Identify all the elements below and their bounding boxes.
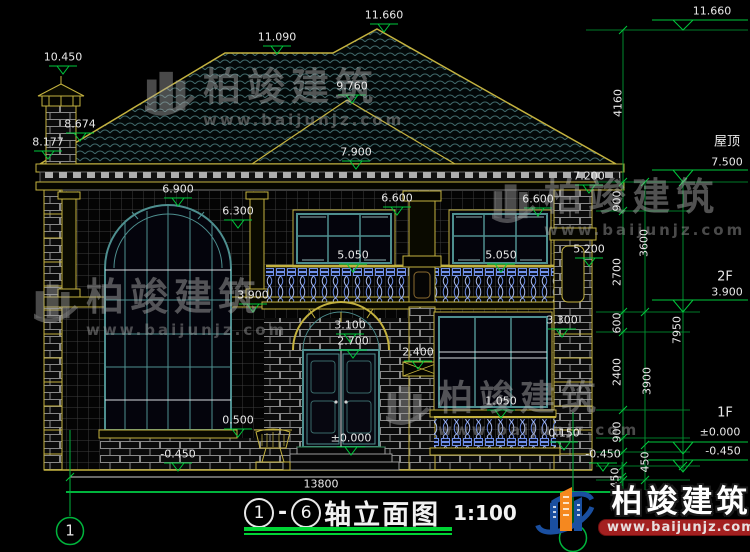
dimension-label: 11.660 bbox=[365, 10, 404, 21]
dimension-label: 3600 bbox=[639, 229, 650, 257]
dimension-label: 450 bbox=[640, 452, 651, 473]
dimension-label: 6.300 bbox=[222, 206, 254, 217]
axis-bubble-number: 1 bbox=[65, 524, 75, 539]
dimension-label: ±0.000 bbox=[700, 427, 741, 438]
dimension-label: 2700 bbox=[612, 258, 623, 286]
dimension-label: 5.050 bbox=[485, 250, 517, 261]
dimension-label: 3.900 bbox=[237, 290, 269, 301]
dimension-label: 10.450 bbox=[44, 52, 83, 63]
axis-circle-start: 1 bbox=[244, 498, 274, 528]
dimension-label: 5.200 bbox=[573, 244, 605, 255]
title-underline bbox=[244, 533, 452, 535]
title-scale: 1:100 bbox=[453, 501, 517, 525]
dimension-label: 7.200 bbox=[573, 171, 605, 182]
title-separator: - bbox=[278, 500, 287, 525]
dimension-label: 900 bbox=[612, 191, 623, 212]
dimension-label: -0.450 bbox=[705, 446, 740, 457]
entry-steps bbox=[283, 447, 399, 470]
dimension-label: 3.300 bbox=[546, 315, 578, 326]
dimension-label: 0.150 bbox=[548, 428, 580, 439]
dimension-label: 3900 bbox=[642, 367, 653, 395]
dimension-label: -0.450 bbox=[585, 449, 620, 460]
dimension-label: 13800 bbox=[304, 479, 339, 490]
dimension-label: 6.600 bbox=[522, 194, 554, 205]
brand-logo: 柏竣建筑 www.baijunjz.com bbox=[534, 477, 750, 545]
dimension-label: 7.900 bbox=[340, 147, 372, 158]
brand-logo-icon bbox=[534, 477, 596, 545]
dimension-label: 3.900 bbox=[711, 287, 743, 298]
dimension-label: 4160 bbox=[613, 89, 624, 117]
dimension-label: 1.050 bbox=[485, 396, 517, 407]
dimension-label: 1F bbox=[717, 407, 733, 420]
main-roof bbox=[40, 29, 616, 164]
dimension-label: 屋顶 bbox=[714, 136, 740, 149]
dimension-label: 3.100 bbox=[334, 320, 366, 331]
dimension-label: 900 bbox=[612, 422, 623, 443]
axis-circle-end: 6 bbox=[291, 498, 321, 528]
dimension-label: 600 bbox=[612, 313, 623, 334]
dimension-label: 5.050 bbox=[337, 250, 369, 261]
brand-logo-url: www.baijunjz.com bbox=[598, 519, 750, 536]
dimension-label: 11.660 bbox=[693, 6, 732, 17]
dimension-label: 8.674 bbox=[64, 119, 96, 130]
dimension-label: 0.500 bbox=[222, 415, 254, 426]
arched-window bbox=[99, 205, 237, 438]
balustrade-1f bbox=[430, 417, 560, 455]
dimension-label: 8.177 bbox=[32, 137, 64, 148]
dimension-label: 6.600 bbox=[381, 193, 413, 204]
title-underline bbox=[244, 527, 452, 531]
dimension-label: ±0.000 bbox=[331, 433, 372, 444]
dimension-label: 2F bbox=[717, 271, 733, 284]
dimension-label: 9.760 bbox=[336, 81, 368, 92]
dimension-label: -0.450 bbox=[160, 449, 195, 460]
cornice-band bbox=[36, 164, 624, 190]
dimension-label: 2400 bbox=[612, 358, 623, 386]
cad-elevation-screenshot: 柏竣建筑 www.baijunjz.com 柏竣建筑 www.baijunjz.… bbox=[0, 0, 750, 552]
dimension-label: 7.500 bbox=[711, 157, 743, 168]
dimension-label: 6.900 bbox=[162, 184, 194, 195]
elevation-drawing bbox=[0, 0, 750, 552]
brand-logo-text: 柏竣建筑 bbox=[611, 486, 750, 519]
dimension-label: 2.400 bbox=[402, 347, 434, 358]
dimension-label: 7950 bbox=[672, 316, 683, 344]
dimension-label: 11.090 bbox=[258, 32, 297, 43]
dimension-label: 2.700 bbox=[337, 336, 369, 347]
